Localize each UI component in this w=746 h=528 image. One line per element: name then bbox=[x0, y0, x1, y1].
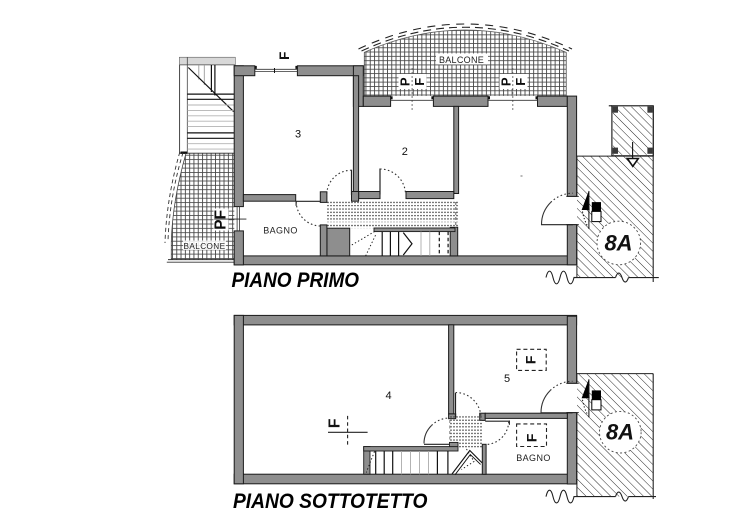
svg-text:4: 4 bbox=[385, 390, 391, 402]
svg-text:P: P bbox=[397, 77, 412, 86]
svg-text:2: 2 bbox=[402, 146, 408, 158]
svg-text:BAGNO: BAGNO bbox=[263, 226, 298, 236]
svg-text:F: F bbox=[522, 355, 538, 364]
svg-text:BALCONE: BALCONE bbox=[184, 242, 226, 251]
svg-text:F: F bbox=[412, 78, 427, 86]
svg-text:P: P bbox=[499, 77, 514, 86]
svg-text:PIANO PRIMO: PIANO PRIMO bbox=[232, 269, 360, 292]
svg-text:BALCONE: BALCONE bbox=[439, 55, 484, 65]
svg-text:F: F bbox=[326, 418, 343, 428]
svg-text:3: 3 bbox=[295, 129, 301, 141]
svg-text:8A: 8A bbox=[606, 420, 634, 445]
svg-text:BAGNO: BAGNO bbox=[516, 453, 551, 463]
svg-text:5: 5 bbox=[504, 373, 510, 385]
svg-text:F: F bbox=[277, 52, 292, 60]
svg-text:F: F bbox=[523, 433, 539, 442]
svg-text:PIANO SOTTOTETTO: PIANO SOTTOTETTO bbox=[233, 490, 428, 513]
svg-text:8A: 8A bbox=[604, 231, 632, 256]
svg-text:F: F bbox=[513, 78, 528, 86]
svg-text:PF: PF bbox=[213, 210, 230, 230]
